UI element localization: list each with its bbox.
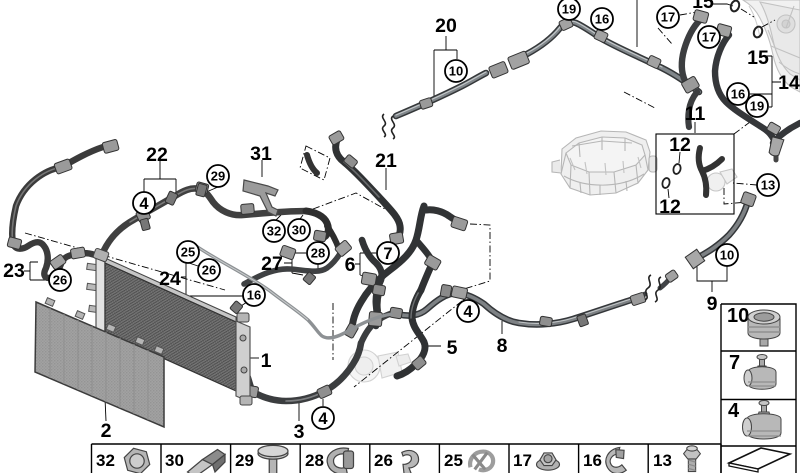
svg-text:4: 4 <box>463 303 473 321</box>
svg-text:4: 4 <box>318 410 328 428</box>
svg-text:10: 10 <box>449 64 463 79</box>
svg-text:28: 28 <box>305 451 324 470</box>
svg-text:28: 28 <box>311 246 325 261</box>
svg-text:13: 13 <box>761 178 775 193</box>
svg-text:17: 17 <box>702 30 716 45</box>
svg-text:17: 17 <box>661 10 675 25</box>
svg-text:15: 15 <box>747 47 769 69</box>
svg-text:25: 25 <box>444 451 463 470</box>
svg-text:19: 19 <box>562 2 576 17</box>
svg-text:31: 31 <box>250 143 272 165</box>
svg-text:5: 5 <box>447 337 458 359</box>
svg-text:23: 23 <box>3 260 25 282</box>
svg-text:9: 9 <box>707 293 718 315</box>
svg-text:15: 15 <box>692 0 714 13</box>
svg-text:6: 6 <box>345 254 356 276</box>
svg-text:32: 32 <box>96 451 115 470</box>
svg-text:10: 10 <box>727 305 749 327</box>
svg-text:8: 8 <box>497 335 508 357</box>
svg-text:13: 13 <box>653 451 672 470</box>
svg-text:30: 30 <box>165 451 184 470</box>
svg-text:25: 25 <box>181 245 195 260</box>
svg-text:32: 32 <box>267 224 281 239</box>
svg-text:16: 16 <box>731 87 745 102</box>
svg-text:30: 30 <box>292 223 306 238</box>
svg-text:7: 7 <box>729 352 740 374</box>
svg-text:26: 26 <box>53 273 67 288</box>
svg-text:24: 24 <box>159 268 181 290</box>
svg-text:12: 12 <box>659 196 681 218</box>
svg-text:4: 4 <box>139 195 149 213</box>
svg-text:26: 26 <box>202 263 216 278</box>
svg-text:7: 7 <box>383 245 392 263</box>
svg-text:20: 20 <box>435 15 457 37</box>
svg-text:22: 22 <box>146 144 168 166</box>
svg-text:27: 27 <box>261 253 283 275</box>
svg-text:2: 2 <box>101 420 112 442</box>
svg-text:11: 11 <box>685 103 706 125</box>
svg-text:29: 29 <box>211 169 225 184</box>
svg-text:19: 19 <box>750 99 764 114</box>
svg-text:26: 26 <box>374 451 393 470</box>
svg-text:3: 3 <box>294 421 305 443</box>
svg-text:21: 21 <box>375 150 397 172</box>
svg-text:16: 16 <box>247 288 261 303</box>
svg-text:17: 17 <box>513 451 532 470</box>
svg-text:16: 16 <box>583 451 602 470</box>
svg-text:14: 14 <box>778 72 800 94</box>
svg-text:10: 10 <box>720 248 734 263</box>
svg-text:29: 29 <box>235 451 254 470</box>
svg-text:1: 1 <box>261 350 272 372</box>
svg-text:12: 12 <box>669 134 691 156</box>
svg-text:16: 16 <box>595 12 609 27</box>
svg-text:4: 4 <box>728 400 740 422</box>
